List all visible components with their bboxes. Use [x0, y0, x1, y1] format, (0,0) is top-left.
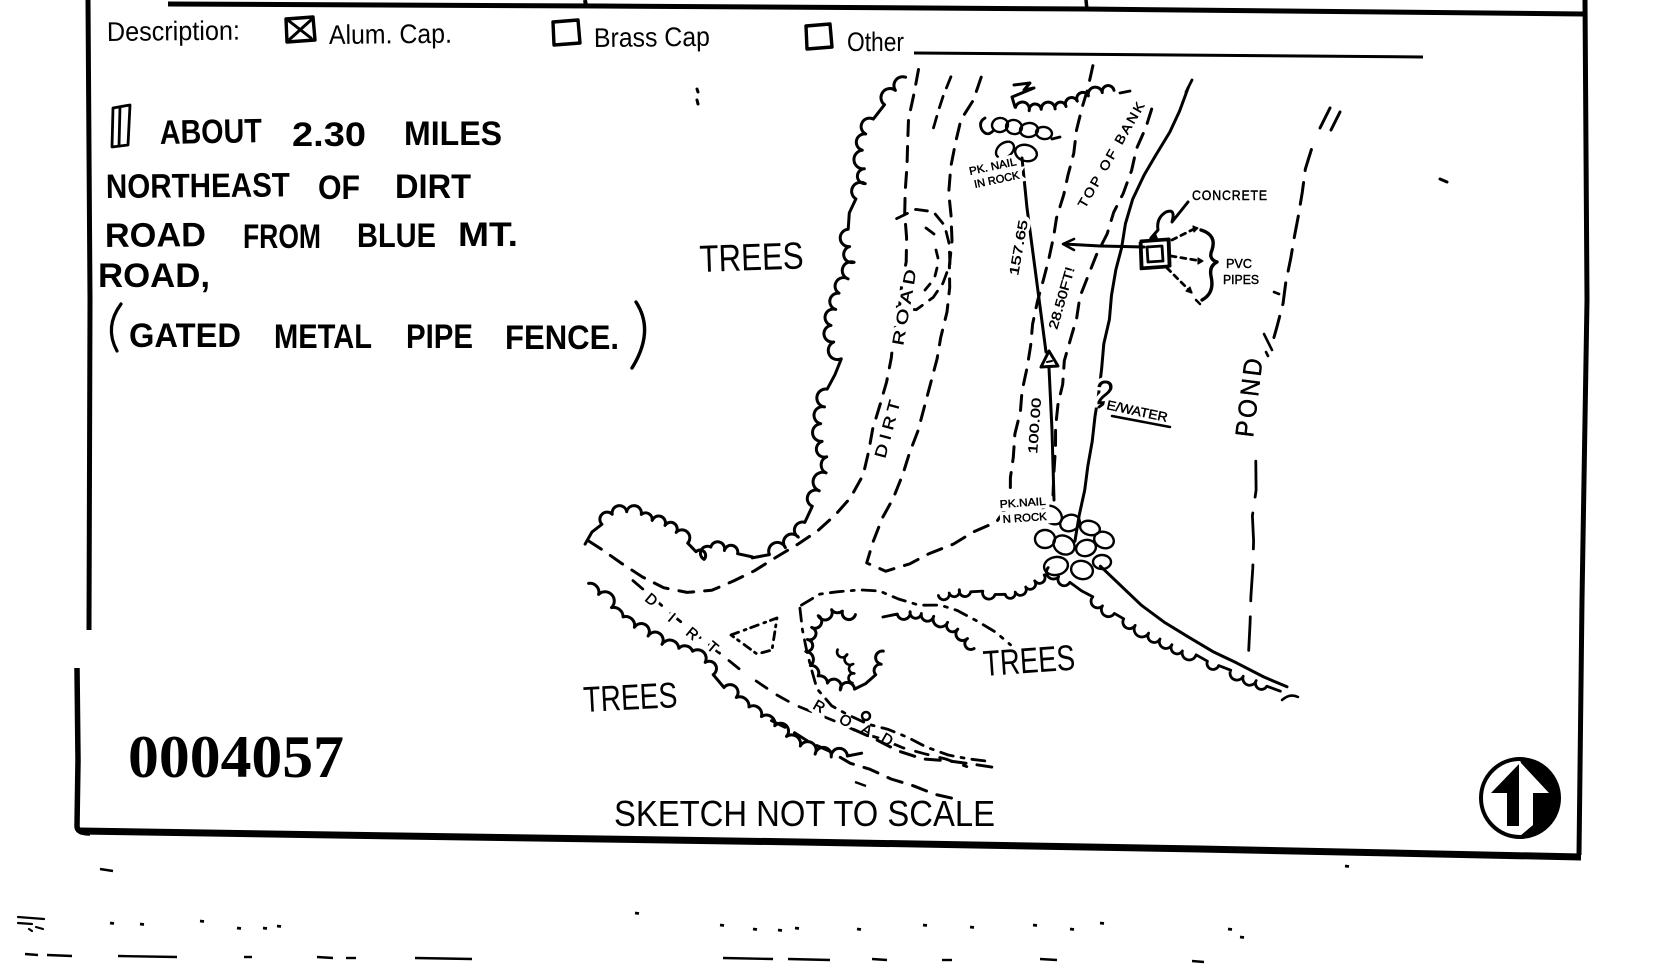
- svg-text:POND: POND: [1229, 354, 1269, 439]
- svg-text:OF: OF: [318, 169, 360, 207]
- svg-text:Alum. Cap.: Alum. Cap.: [329, 19, 452, 50]
- svg-text:Brass Cap: Brass Cap: [594, 22, 710, 53]
- svg-text:D: D: [641, 590, 660, 610]
- svg-text:GATED: GATED: [129, 317, 241, 355]
- svg-text:PVC: PVC: [1226, 256, 1252, 271]
- svg-text:N ROCK: N ROCK: [1002, 511, 1047, 526]
- svg-text:DIRT: DIRT: [872, 394, 905, 460]
- svg-text:DIRT: DIRT: [395, 168, 471, 206]
- svg-text:FENCE.: FENCE.: [505, 319, 619, 357]
- svg-text:PK.NAIL: PK.NAIL: [999, 496, 1046, 511]
- svg-text:METAL: METAL: [274, 318, 372, 356]
- svg-text:ROAD: ROAD: [890, 263, 921, 347]
- svg-text:TREES: TREES: [982, 637, 1077, 684]
- svg-text:157.65: 157.65: [1006, 219, 1030, 277]
- svg-text:ROAD,: ROAD,: [98, 257, 210, 295]
- svg-text:ROAD: ROAD: [105, 216, 206, 255]
- svg-text:ABOUT: ABOUT: [159, 112, 262, 152]
- svg-text:FROM: FROM: [243, 218, 321, 256]
- svg-text:TREES: TREES: [699, 235, 804, 281]
- svg-text:Other: Other: [847, 27, 904, 57]
- svg-text:0004057: 0004057: [128, 724, 344, 790]
- svg-text:PIPE: PIPE: [406, 318, 473, 356]
- svg-text:BLUE: BLUE: [357, 217, 436, 255]
- svg-text:SKETCH NOT TO SCALE: SKETCH NOT TO SCALE: [614, 793, 995, 834]
- svg-text:TREES: TREES: [582, 674, 678, 720]
- svg-text:CONCRETE: CONCRETE: [1192, 187, 1268, 203]
- svg-text:TOP OF BANK: TOP OF BANK: [1075, 97, 1149, 210]
- svg-text:2.30: 2.30: [292, 116, 366, 154]
- svg-text:R: R: [682, 624, 701, 644]
- svg-text:PIPES: PIPES: [1223, 272, 1259, 287]
- svg-text:28.50FT!: 28.50FT!: [1045, 265, 1077, 331]
- svg-text:MT.: MT.: [458, 216, 518, 254]
- svg-text:MILES: MILES: [404, 115, 502, 153]
- svg-text:NORTHEAST: NORTHEAST: [106, 166, 291, 206]
- svg-text:100.00: 100.00: [1025, 397, 1044, 454]
- svg-text:Description:: Description:: [107, 16, 240, 47]
